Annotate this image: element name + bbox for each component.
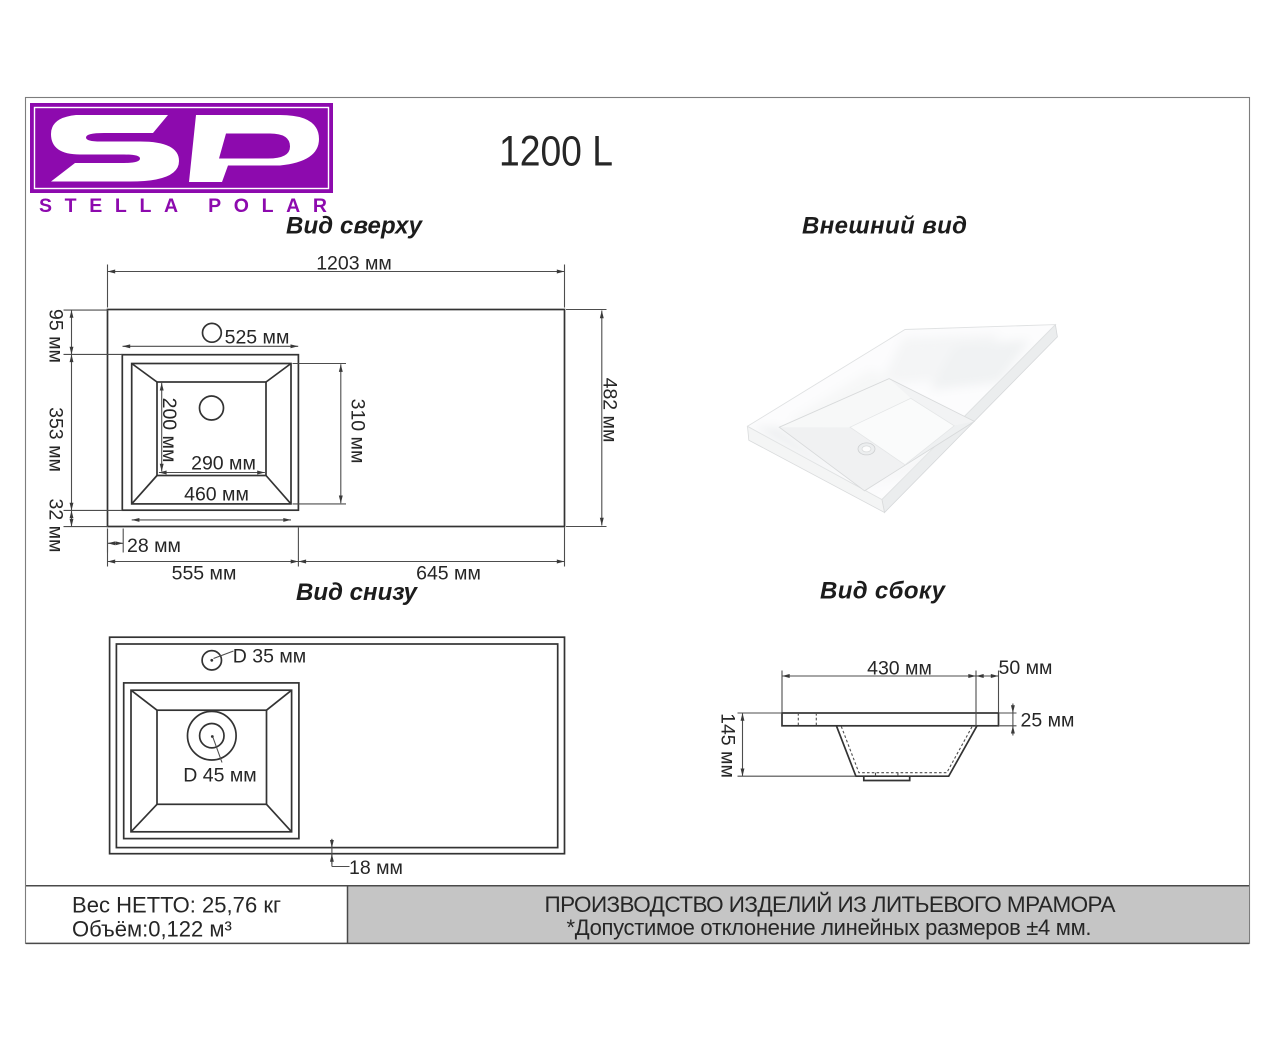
svg-text:32 мм: 32 мм (45, 499, 67, 553)
svg-text:50 мм: 50 мм (999, 657, 1053, 679)
svg-text:D 45 мм: D 45 мм (183, 765, 256, 787)
svg-text:Вид сбоку: Вид сбоку (820, 578, 947, 605)
svg-text:18 мм: 18 мм (349, 857, 403, 879)
svg-text:Внешний вид: Внешний вид (802, 213, 967, 240)
svg-text:25 мм: 25 мм (1021, 710, 1075, 732)
svg-text:ПРОИЗВОДСТВО ИЗДЕЛИЙ ИЗ ЛИТЬЕВ: ПРОИЗВОДСТВО ИЗДЕЛИЙ ИЗ ЛИТЬЕВОГО МРАМОР… (545, 892, 1116, 917)
svg-text:1203 мм: 1203 мм (316, 253, 392, 275)
svg-text:460 мм: 460 мм (184, 484, 249, 506)
svg-text:353 мм: 353 мм (45, 407, 67, 472)
svg-text:95 мм: 95 мм (45, 309, 67, 363)
svg-text:145 мм: 145 мм (717, 713, 739, 778)
svg-text:STELLA POLAR: STELLA POLAR (39, 195, 327, 217)
svg-text:310 мм: 310 мм (347, 399, 369, 464)
svg-text:645 мм: 645 мм (416, 563, 481, 585)
svg-text:28 мм: 28 мм (127, 535, 181, 557)
svg-text:Вес НЕТТО: 25,76 кг: Вес НЕТТО: 25,76 кг (72, 893, 281, 918)
svg-text:525 мм: 525 мм (225, 327, 290, 349)
svg-text:*Допустимое отклонение линейны: *Допустимое отклонение линейных размеров… (567, 915, 1092, 940)
svg-text:1200 L: 1200 L (499, 129, 613, 176)
svg-text:D 35 мм: D 35 мм (233, 646, 306, 668)
svg-text:430 мм: 430 мм (867, 658, 932, 680)
svg-text:Вид сверху: Вид сверху (286, 213, 424, 240)
svg-text:200 мм: 200 мм (158, 398, 180, 463)
svg-text:482 мм: 482 мм (599, 378, 621, 443)
svg-text:Объём:0,122 м³: Объём:0,122 м³ (72, 917, 232, 942)
svg-text:290 мм: 290 мм (191, 453, 256, 475)
svg-text:Вид снизу: Вид снизу (296, 579, 419, 606)
svg-text:555 мм: 555 мм (172, 563, 237, 585)
